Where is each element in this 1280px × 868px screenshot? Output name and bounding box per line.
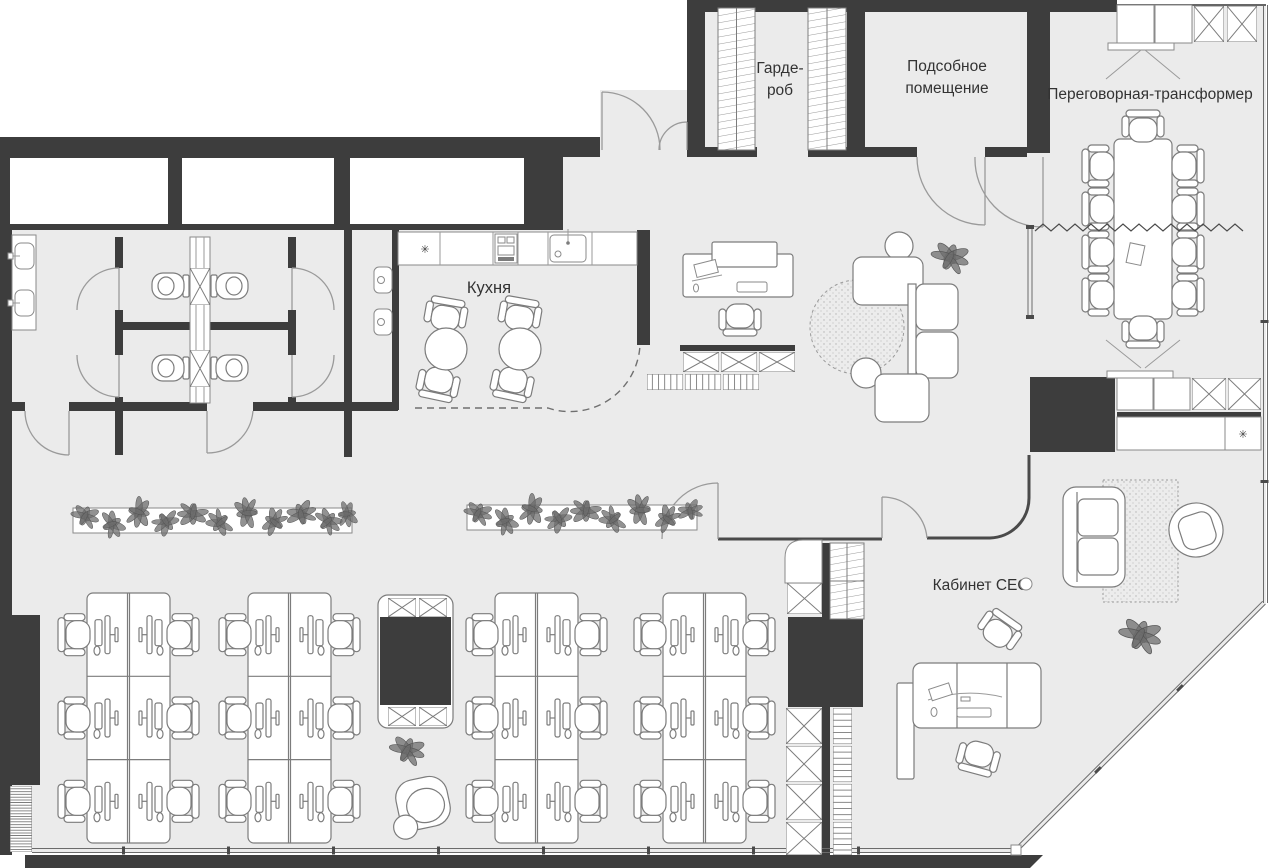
- desk-bank-4: [634, 593, 775, 843]
- coat-rack-1: [718, 8, 755, 150]
- keyboard: [957, 708, 991, 717]
- bookshelf: [833, 784, 852, 820]
- coat-rack-3: [830, 543, 864, 619]
- plumbing-shaft: [190, 237, 210, 403]
- facade-corner-cap: [1011, 845, 1021, 855]
- office-floor-plan: Гарде- роб Подсобное помещение Переговор…: [0, 0, 1280, 868]
- label-wardrobe-2: роб: [767, 82, 793, 99]
- label-kitchen: Кухня: [467, 279, 511, 297]
- ceo-sofa: [1063, 487, 1125, 587]
- bookshelf: [833, 708, 852, 744]
- floor-plan-svg: Гарде- роб Подсобное помещение Переговор…: [0, 0, 1280, 868]
- x-cabinet: [1227, 6, 1257, 42]
- pouf: [885, 232, 913, 260]
- x-cabinet: [786, 784, 822, 820]
- cabinet: [1155, 5, 1192, 43]
- desk-bank-2: [219, 593, 360, 843]
- x-cabinet: [1192, 378, 1226, 410]
- cabinet: [1117, 5, 1154, 43]
- x-cabinet: [786, 746, 822, 782]
- cabinet: [1154, 378, 1190, 410]
- coat-rack-2: [808, 8, 846, 150]
- rounded-cabinet: [785, 540, 822, 583]
- sofa-module: [916, 332, 958, 378]
- meeting-table: [1114, 139, 1172, 319]
- label-meeting: Переговорная-трансформер: [1047, 86, 1253, 103]
- x-cabinet: [1194, 6, 1224, 42]
- toilet: [152, 273, 189, 299]
- bookshelf: [833, 746, 852, 782]
- x-cabinet: [1228, 378, 1261, 410]
- sofa-module: [875, 374, 929, 422]
- cooktop-star-icon: ✳: [420, 244, 429, 256]
- x-cabinet: [787, 583, 822, 614]
- label-wardrobe-1: Гарде-: [756, 60, 803, 77]
- storage-unit-mid: [378, 595, 453, 728]
- label-ceo: Кабинет CEO: [933, 577, 1030, 594]
- toilet: [211, 273, 248, 299]
- left-bookshelf: [10, 786, 32, 852]
- toilet: [152, 355, 189, 381]
- x-cabinet: [786, 708, 822, 744]
- label-utility-1: Подсобное: [907, 58, 987, 75]
- x-cabinet: [786, 822, 822, 855]
- window-top-2: [182, 158, 334, 224]
- toilet: [211, 355, 248, 381]
- bookshelf: [833, 822, 852, 855]
- desk-bank-3: [466, 593, 607, 843]
- sink-counter: [8, 235, 36, 330]
- reception-monitor: [712, 242, 777, 267]
- keyboard: [737, 282, 767, 292]
- label-utility-2: помещение: [905, 80, 988, 97]
- sofa-module: [916, 284, 958, 330]
- sofa-back-panel: [908, 284, 916, 374]
- window-top-1: [10, 158, 168, 224]
- window-top-3: [350, 158, 524, 224]
- side-table: [1020, 578, 1032, 590]
- desk-bank-1: [58, 593, 199, 843]
- cabinet: [1117, 378, 1153, 410]
- counter-star-icon: ✳: [1238, 429, 1247, 441]
- stove-icon: [495, 234, 517, 263]
- desk-return: [897, 683, 914, 779]
